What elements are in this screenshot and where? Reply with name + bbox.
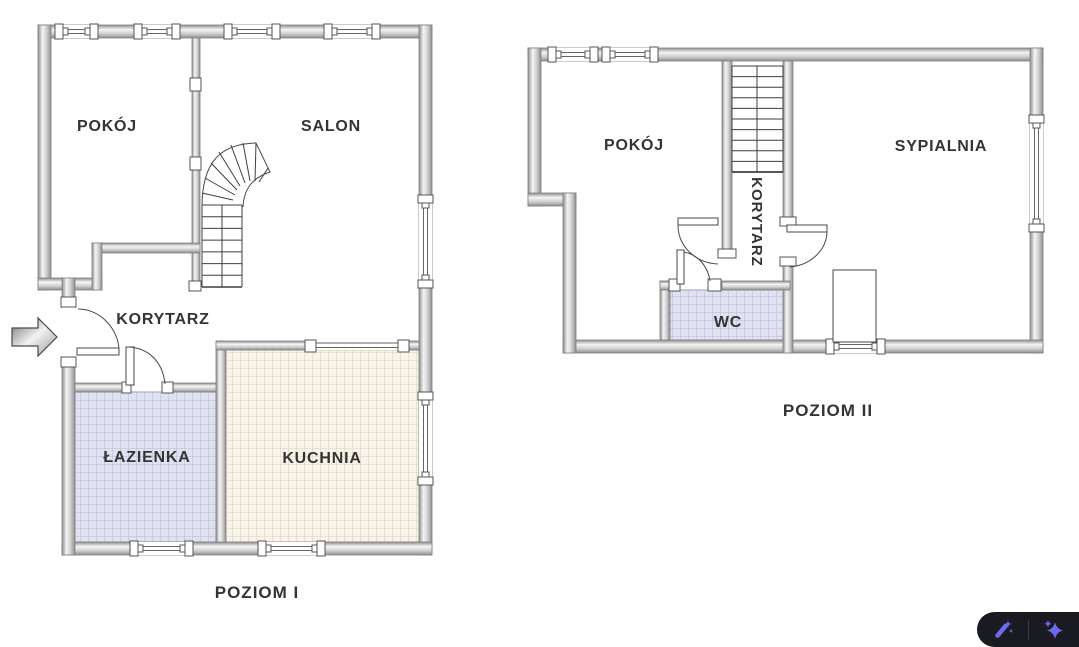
room-label-korytarz-level2: KORYTARZ xyxy=(748,177,765,267)
room-label-lazienka: ŁAZIENKA xyxy=(103,449,190,466)
level2-title: POZIOM II xyxy=(783,401,873,420)
room-label-pokoj-level2: POKÓJ xyxy=(604,135,664,154)
level1-title: POZIOM I xyxy=(215,583,300,602)
room-label-wc: WC xyxy=(714,314,742,331)
sparkles-icon[interactable] xyxy=(1037,616,1071,644)
ai-toolbar xyxy=(977,612,1079,647)
toolbar-divider xyxy=(1028,620,1029,640)
room-label-pokoj-level1: POKÓJ xyxy=(77,116,137,135)
entrance-arrow-icon xyxy=(12,318,57,356)
room-label-sypialnia: SYPIALNIA xyxy=(895,138,988,155)
floorplan-page: POKÓJ SALON KORYTARZ ŁAZIENKA KUCHNIA PO… xyxy=(0,0,1079,647)
magic-wand-icon[interactable] xyxy=(985,616,1019,644)
room-label-korytarz-level1: KORYTARZ xyxy=(116,311,210,328)
room-label-salon: SALON xyxy=(301,118,361,135)
level2-geometry xyxy=(528,47,1044,354)
room-label-kuchnia: KUCHNIA xyxy=(282,450,361,467)
floorplan-drawing: POKÓJ SALON KORYTARZ ŁAZIENKA KUCHNIA PO… xyxy=(0,0,1079,647)
level1-geometry xyxy=(38,24,433,556)
